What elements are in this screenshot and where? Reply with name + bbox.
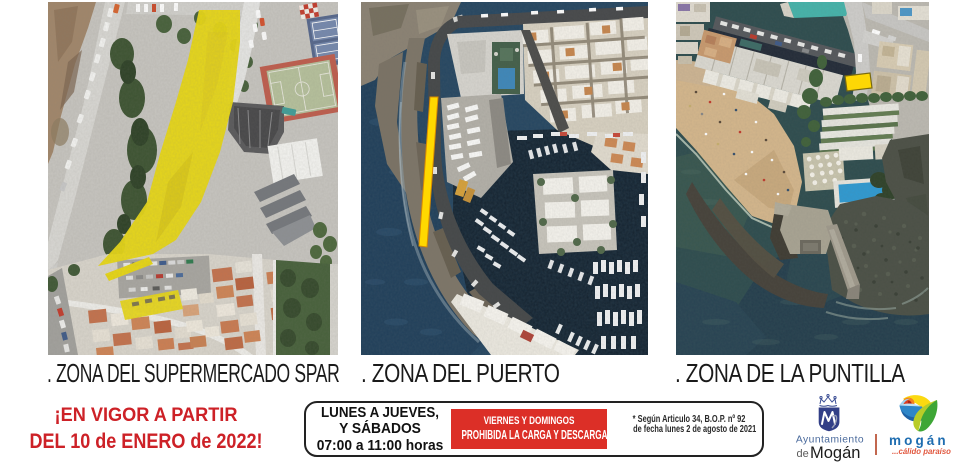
svg-text:mogán: mogán: [889, 433, 949, 448]
svg-text:Mogán: Mogán: [810, 444, 860, 462]
svg-text:...cálido paraíso: ...cálido paraíso: [892, 447, 951, 456]
svg-text:de: de: [797, 448, 809, 460]
